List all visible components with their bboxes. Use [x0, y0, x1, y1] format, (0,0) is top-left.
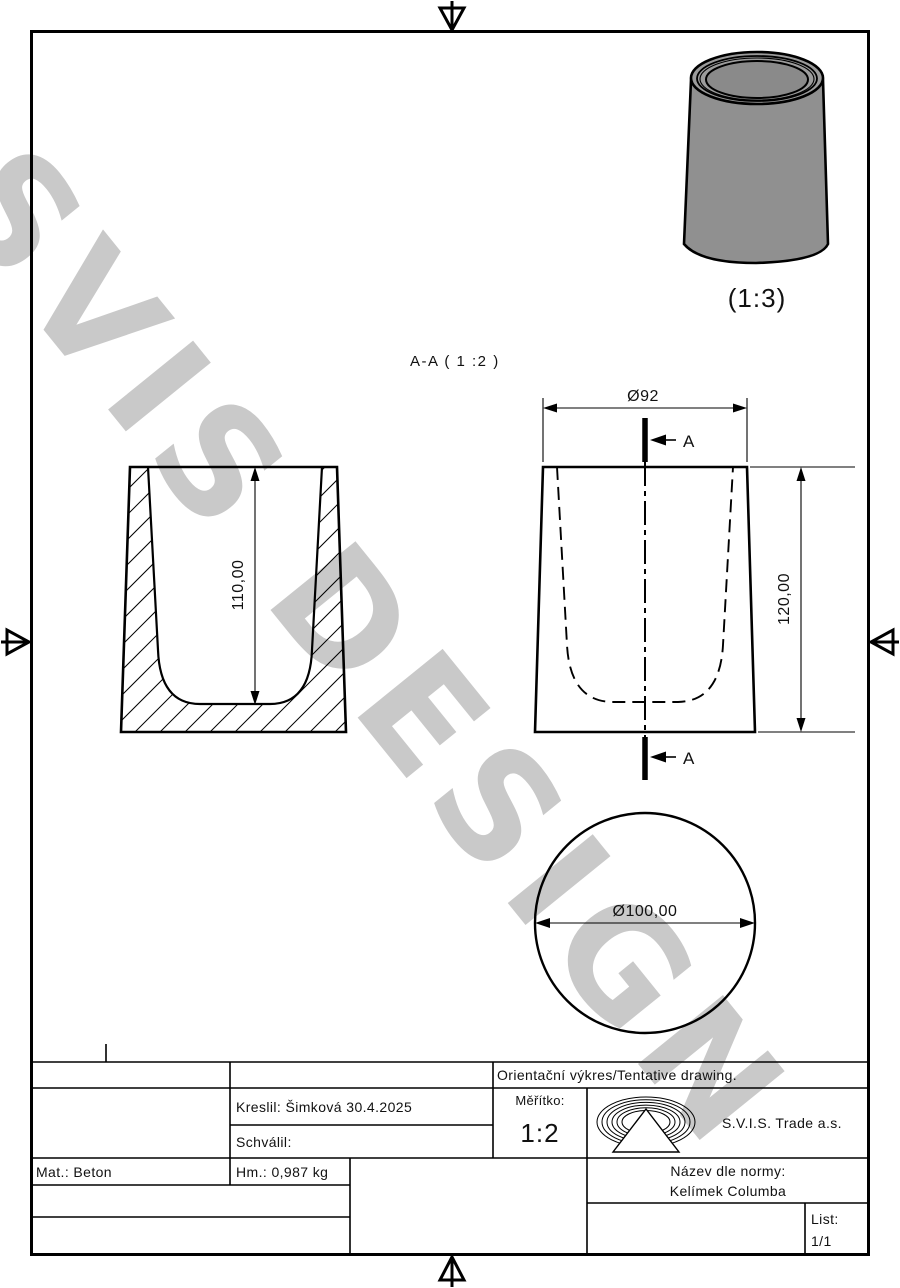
dim-total-height: 120,00: [750, 467, 855, 732]
title-block: [31, 1062, 869, 1254]
drawn-by-field: Kreslil: Šimková 30.4.2025: [236, 1099, 412, 1115]
sheet-label: List:: [811, 1211, 839, 1227]
section-view-title: A-A ( 1 :2 ): [410, 353, 500, 370]
svg-text:110,00: 110,00: [230, 560, 247, 611]
iso-scale-label: (1:3): [728, 283, 786, 313]
sheet-value: 1/1: [811, 1233, 832, 1249]
section-cut-mark-bottom: A: [645, 737, 695, 780]
dim-bottom-diameter: Ø100,00: [535, 903, 755, 928]
approved-by-field: Schválil:: [236, 1134, 292, 1150]
svg-text:120,00: 120,00: [776, 573, 793, 625]
svg-text:A: A: [683, 432, 695, 451]
norm-name-value: Kelímek Columba: [670, 1183, 787, 1199]
front-view: A A Ø92: [535, 388, 855, 780]
registration-mark-right: [871, 630, 899, 654]
section-cut-mark-top: A: [645, 418, 695, 462]
bottom-view: Ø100,00: [535, 813, 755, 1033]
registration-mark-left: [1, 630, 29, 654]
drawing-sheet: (1:3) A-A ( 1 :2 ) 110,00: [0, 0, 900, 1288]
iso-view-cup: [684, 52, 828, 263]
section-view: 110,00: [0, 427, 665, 762]
norm-name-label: Název dle normy:: [670, 1163, 785, 1179]
dim-inner-depth: 110,00: [230, 467, 260, 705]
svg-text:Ø100,00: Ø100,00: [613, 903, 678, 920]
svg-text:A: A: [683, 749, 695, 768]
material-field: Mat.: Beton: [36, 1164, 112, 1180]
company-logo: [597, 1097, 695, 1152]
weight-field: Hm.: 0,987 kg: [236, 1164, 328, 1180]
company-name: S.V.I.S. Trade a.s.: [722, 1115, 842, 1131]
scale-label: Měřítko:: [515, 1093, 564, 1108]
drawing-page: SVIS DESIGN (1:3): [0, 0, 900, 1288]
scale-value: 1:2: [520, 1118, 559, 1148]
registration-mark-top: [440, 1, 464, 30]
hatch-pattern: [0, 427, 665, 762]
registration-mark-bottom: [440, 1257, 464, 1287]
svg-text:Ø92: Ø92: [627, 388, 659, 405]
tentative-drawing-note: Orientační výkres/Tentative drawing.: [497, 1067, 737, 1083]
